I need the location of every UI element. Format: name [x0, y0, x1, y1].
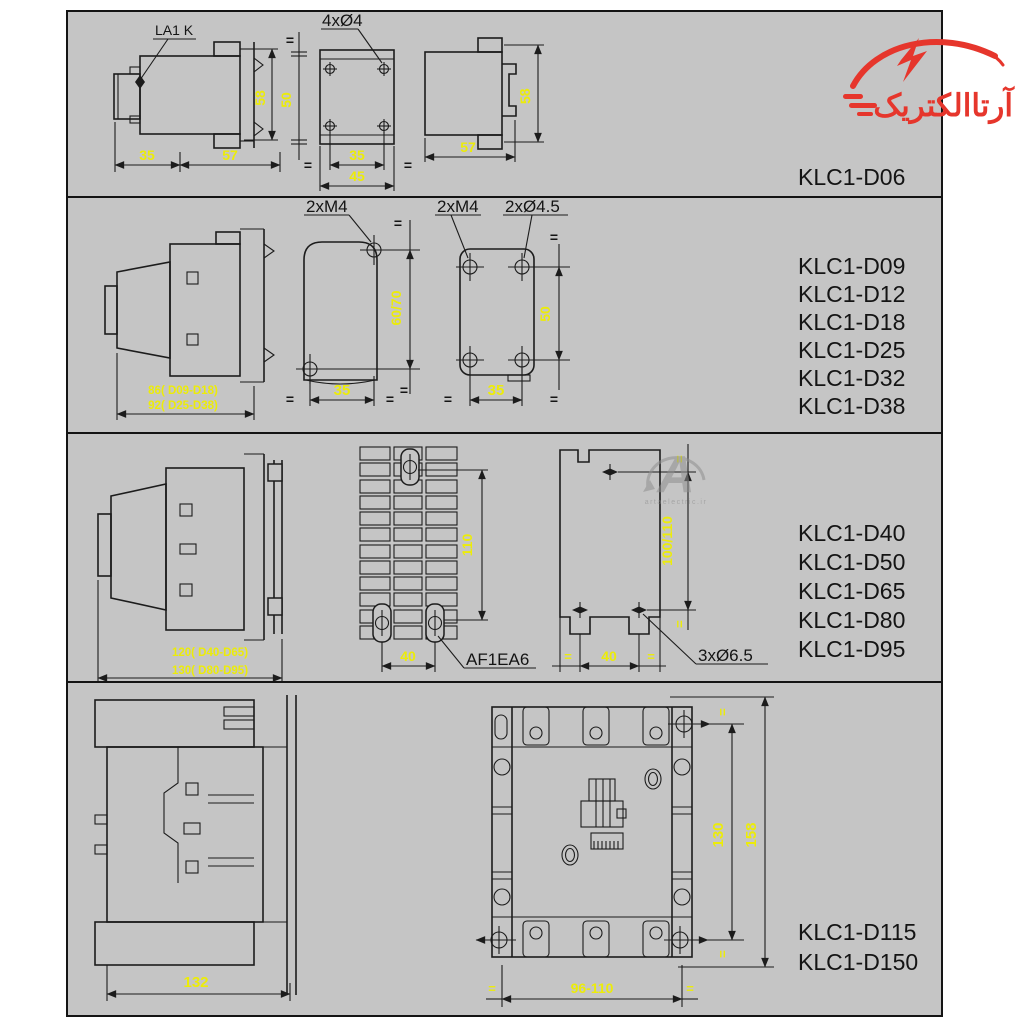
equal-mark: = [286, 391, 294, 407]
model-label: KLC1-D12 [798, 280, 905, 308]
brand-logo: آرتاالکتریک [843, 28, 1017, 130]
dim-50: 50 [278, 92, 294, 108]
model-label: KLC1-D38 [798, 392, 905, 420]
dim-45: 45 [349, 168, 365, 184]
dim-158: 158 [743, 822, 760, 847]
model-label: KLC1-D65 [798, 577, 905, 606]
side-view-right-drawing: 58 57 [425, 38, 544, 162]
holes-4xd4-label: 4xØ4 [322, 12, 363, 30]
side-view-drawing: 86( D09-D18) 92( D25-D38) [105, 229, 274, 420]
side-view-left-drawing: LA1 K 58 35 57 [114, 22, 280, 172]
section-divider [68, 681, 941, 683]
2xm4-mid-label: 2xM4 [306, 198, 348, 216]
logo-text: آرتاالکتریک [873, 85, 1015, 125]
model-label: KLC1-D06 [798, 163, 905, 191]
watermark-caption: artaelectric.ir [645, 499, 708, 506]
dim-58-left: 58 [252, 90, 268, 106]
2xdia4-5-label: 2xØ4.5 [505, 198, 560, 216]
section-divider [68, 432, 941, 434]
dim-58-right: 58 [517, 88, 534, 105]
equal-mark: = [404, 157, 412, 173]
equal-mark: = [715, 708, 730, 716]
drawing-sheet-panel: LA1 K 58 35 57 [66, 10, 943, 1017]
equal-mark: = [672, 620, 687, 628]
model-label: KLC1-D09 [798, 252, 905, 280]
dim-35-mid: 35 [349, 147, 365, 163]
dim-57-right: 57 [460, 139, 476, 155]
equal-mark: = [550, 229, 558, 245]
mounting-hole-markers [323, 62, 391, 133]
model-label: KLC1-D50 [798, 548, 905, 577]
dim-40-mid: 40 [400, 648, 416, 664]
dim-depth-d40-d65: 120( D40-D65) [172, 647, 248, 659]
equal-mark: = [400, 382, 408, 398]
dim-depth-d09-d18: 86( D09-D18) [148, 385, 218, 397]
equal-mark: = [564, 649, 572, 664]
side-view-drawing: 120( D40-D65) 130( D80-D95) [98, 454, 282, 681]
dim-57-left: 57 [222, 147, 238, 163]
front-view-drawing: = = 130 158 = 96-110 = [476, 697, 774, 1007]
dim-50: 50 [537, 306, 553, 322]
dim-35-mid: 35 [334, 382, 351, 399]
equal-mark: = [488, 981, 496, 996]
watermark-letter: A [655, 446, 695, 504]
model-label: KLC1-D40 [798, 519, 905, 548]
equal-mark: = [304, 157, 312, 173]
2xm4-right-label: 2xM4 [437, 198, 479, 216]
dim-96-110: 96-110 [571, 980, 614, 996]
section-divider [68, 196, 941, 198]
equal-mark: = [386, 391, 394, 407]
equal-mark: = [550, 391, 558, 407]
model-label: KLC1-D95 [798, 635, 905, 664]
front-view-drawing: 2xM4 = 60/70 = 35 = = [286, 198, 420, 407]
model-list-3: KLC1-D40 KLC1-D50 KLC1-D65 KLC1-D80 KLC1… [798, 519, 905, 664]
equal-mark: = [394, 215, 402, 231]
equal-mark: = [686, 981, 694, 996]
equal-mark: = [286, 32, 294, 48]
model-label: KLC1-D80 [798, 606, 905, 635]
model-label: KLC1-D18 [798, 308, 905, 336]
la1k-label: LA1 K [155, 22, 194, 38]
dim-40-right: 40 [601, 648, 617, 664]
center-mechanism [562, 769, 661, 865]
equal-mark: = [647, 649, 655, 664]
front-view-middle-drawing: 4xØ4 = 50 35 = = 45 [278, 12, 412, 191]
dim-35-left: 35 [139, 147, 155, 163]
model-list-1: KLC1-D06 [798, 163, 905, 191]
mounting-plate-drawing: 2xM4 2xØ4.5 50 = = 35 = [435, 198, 570, 407]
model-label: KLC1-D115 [798, 917, 918, 947]
model-label: KLC1-D32 [798, 364, 905, 392]
equal-mark: = [715, 950, 730, 958]
side-view-drawing: 132 [95, 695, 296, 1001]
3xdia6-5-label: 3xØ6.5 [698, 646, 753, 665]
model-label: KLC1-D25 [798, 336, 905, 364]
model-list-2: KLC1-D09 KLC1-D12 KLC1-D18 KLC1-D25 KLC1… [798, 252, 905, 420]
terminal-grid-drawing: 110 40 AF1EA6 [360, 447, 536, 672]
dim-depth-d25-d38: 92( D25-D38) [148, 400, 218, 412]
dim-100-110: 100/110 [659, 516, 675, 566]
dim-130: 130 [710, 822, 727, 847]
model-list-4: KLC1-D115 KLC1-D150 [798, 917, 918, 977]
watermark: A artaelectric.ir [634, 440, 718, 512]
model-label: KLC1-D150 [798, 947, 918, 977]
dim-132: 132 [183, 974, 208, 991]
dim-depth-d80-d95: 130( D80-D95) [172, 665, 248, 677]
mounting-hole-markers [456, 253, 536, 374]
dim-60-70: 60/70 [388, 290, 404, 325]
dim-110: 110 [459, 533, 475, 556]
dim-35-right: 35 [488, 382, 505, 399]
af1ea6-label: AF1EA6 [466, 650, 529, 669]
equal-mark: = [444, 391, 452, 407]
